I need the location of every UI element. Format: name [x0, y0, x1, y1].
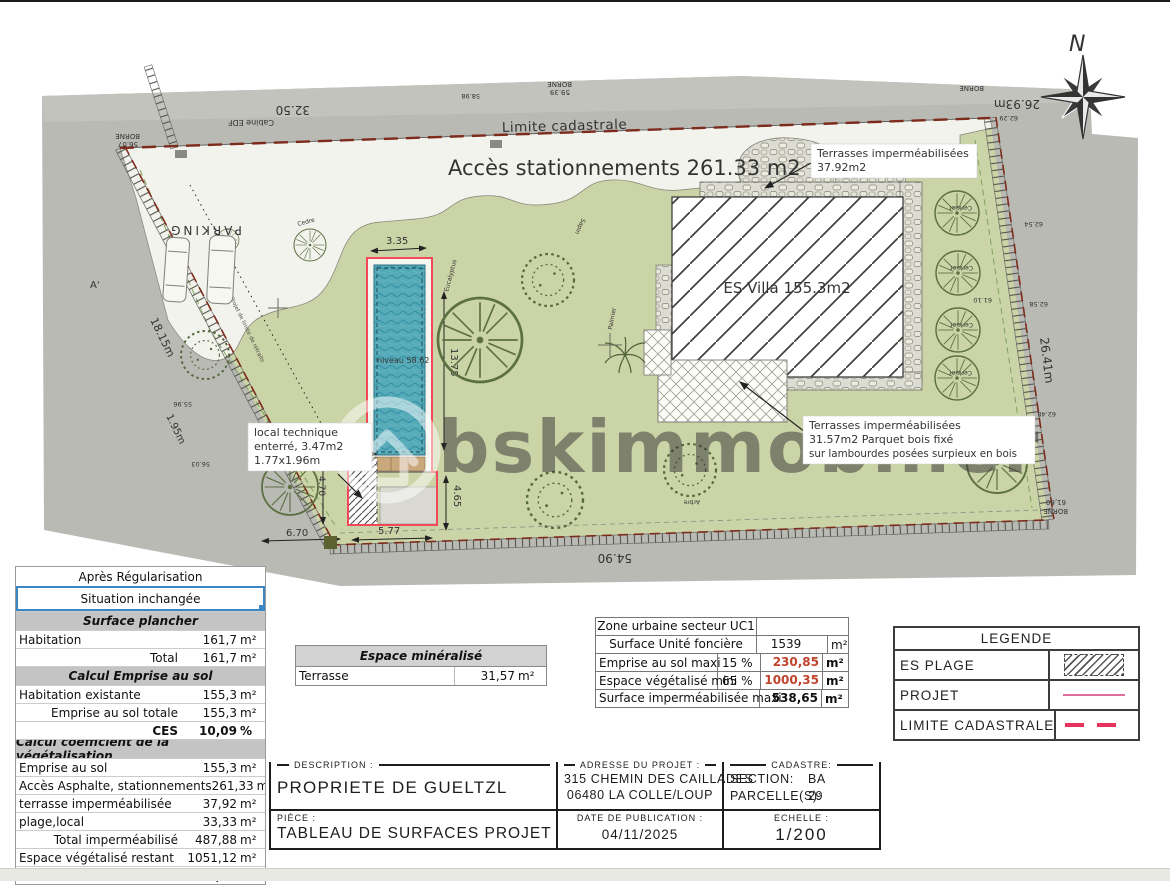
- annotation-line: 37.92m2: [817, 161, 866, 174]
- tree-label-cerisier-2: Cerisier: [950, 264, 973, 271]
- table-row: terrasse imperméabilisée37,92m²: [16, 794, 265, 812]
- dim-street-top: 32.50: [276, 103, 310, 117]
- section-title: Calcul Emprise au sol: [68, 669, 212, 683]
- dim-pool-width: 3.35: [386, 236, 408, 247]
- row-unit: m²: [237, 851, 265, 865]
- borne-bottomright: BORNE: [1043, 507, 1068, 515]
- elevation: 56.03: [191, 460, 210, 468]
- cadastre-label: CADASTRE:: [771, 760, 832, 770]
- tree-label-cerisier-4: Cerisier: [949, 369, 972, 376]
- limite-cadastrale-label: Limite cadastrale: [502, 117, 628, 136]
- table-row: Total161,7m²: [16, 648, 265, 666]
- row-value: 37,92: [183, 797, 237, 811]
- borne-marker: [324, 536, 337, 549]
- row-label: Surface Unité foncière: [596, 636, 757, 653]
- row-unit: m²: [515, 669, 546, 683]
- rule: [564, 764, 575, 766]
- table-row: Espace végétalisé mini 65 % 1000,35 m²: [596, 671, 848, 689]
- parking-label: PARKING: [168, 223, 242, 237]
- parcelle-label: PARCELLE(S):: [730, 788, 808, 805]
- adresse-line-2: 06480 LA COLLE/LOUP: [564, 787, 716, 803]
- cabine-edf-label: Cabine EDF: [227, 118, 274, 127]
- elevation: 62.29: [999, 114, 1018, 122]
- table-header-situation: Situation inchangée: [16, 586, 265, 611]
- row-label: Emprise au sol totale: [16, 706, 183, 720]
- dim-bottom-1: 6.70: [286, 528, 308, 539]
- mineral-table: Espace minéralisé Terrasse 31,57 m²: [295, 645, 547, 686]
- row-label: Total imperméabilisé: [16, 833, 183, 847]
- row-value: 155,3: [183, 761, 237, 775]
- zone-title: Zone urbaine secteur UC1: [596, 618, 757, 635]
- row-value: 538,65: [760, 690, 822, 707]
- echelle-value: 1/200: [730, 825, 873, 845]
- row-unit: m²: [237, 633, 265, 647]
- annotation-line: Terrasses imperméabilisées: [816, 147, 969, 160]
- piece-value: TABLEAU DE SURFACES PROJET: [277, 825, 550, 843]
- section-value: BA: [808, 771, 873, 788]
- row-unit: m²: [237, 815, 265, 829]
- row-label: Habitation existante: [16, 688, 183, 702]
- row-label: Total: [16, 651, 183, 665]
- legend: LEGENDE ES PLAGE PROJET LIMITE CADASTRAL…: [893, 626, 1140, 741]
- rule: [837, 764, 873, 766]
- row-value: 155,3: [183, 688, 237, 702]
- row-percent: 15 %: [718, 654, 761, 671]
- annotation-line: 1.77x1.96m: [254, 454, 320, 467]
- page: { "plan": { "north": "N", "watermark": "…: [0, 0, 1170, 880]
- borne-topright: BORNE: [959, 84, 984, 92]
- row-unit: m²: [237, 761, 265, 775]
- table-row: Terrasse 31,57 m²: [296, 667, 546, 685]
- borne-top: BORNE: [547, 80, 572, 88]
- row-unit: m²: [237, 833, 265, 847]
- description-label: DESCRIPTION :: [294, 760, 374, 770]
- adresse-value: 315 CHEMIN DES CAILLADES 06480 LA COLLE/…: [564, 771, 716, 804]
- row-unit: m²: [828, 638, 848, 652]
- row-label: Espace végétalisé mini: [596, 672, 718, 689]
- title-block-cadastre: CADASTRE: SECTION: BA PARCELLE(S): 29: [722, 762, 879, 809]
- title-block-piece: PIÈCE : TABLEAU DE SURFACES PROJET: [271, 809, 556, 848]
- mineral-table-header: Espace minéralisé: [296, 646, 546, 667]
- legend-title: LEGENDE: [895, 628, 1138, 649]
- row-value: 230,85: [761, 654, 823, 671]
- dim-bottom-2: 5.77: [378, 526, 400, 537]
- legend-swatch-cell: [1048, 681, 1138, 709]
- table-row: Emprise au sol totale155,3m²: [16, 703, 265, 721]
- title-block-adresse: ADRESSE DU PROJET : 315 CHEMIN DES CAILL…: [556, 762, 722, 809]
- north-label: N: [1069, 32, 1085, 57]
- borne-left-value: 56.07: [118, 140, 138, 148]
- adresse-line-1: 315 CHEMIN DES CAILLADES: [564, 771, 716, 787]
- label-a-prime: A': [90, 280, 100, 291]
- rule: [730, 764, 766, 766]
- table-row: Total imperméabilisé487,88m²: [16, 830, 265, 848]
- acces-label: Accès stationnements 261.33 m2: [448, 156, 801, 180]
- row-value: 1000,35: [761, 672, 823, 689]
- rule: [277, 764, 289, 766]
- window-top-edge: [0, 0, 1170, 2]
- title-block-echelle: ECHELLE : 1/200: [722, 809, 879, 848]
- row-value: 1051,12: [183, 851, 237, 865]
- dim-top-right: 26.93m: [994, 97, 1040, 111]
- row-label: Emprise au sol: [16, 761, 183, 775]
- row-value: 155,3: [183, 706, 237, 720]
- date-label: DATE DE PUBLICATION :: [564, 813, 716, 823]
- elevation: 61.10: [973, 296, 992, 304]
- adresse-label: ADRESSE DU PROJET :: [580, 760, 700, 770]
- table-row: Surface Unité foncière 1539 m²: [596, 635, 848, 653]
- window-bottom-edge: [0, 868, 1170, 881]
- section-surface-plancher: Surface plancher: [16, 611, 265, 630]
- legend-label: PROJET: [895, 688, 1048, 703]
- title-block: DESCRIPTION : PROPRIETE DE GUELTZL ADRES…: [269, 762, 881, 850]
- row-unit: m²: [237, 688, 265, 702]
- title-block-date: DATE DE PUBLICATION : 04/11/2025: [556, 809, 722, 848]
- borne-bottomright-value: 61,60: [1046, 498, 1066, 506]
- table-row: Surface imperméabilisée maxi 538,65 m²: [596, 689, 848, 707]
- table-row: Zone urbaine secteur UC1: [596, 618, 848, 635]
- date-value: 04/11/2025: [564, 827, 716, 842]
- table-row: Emprise au sol155,3m²: [16, 758, 265, 776]
- row-value: 261,33: [212, 779, 254, 793]
- cadastre-header: CADASTRE:: [730, 761, 873, 769]
- row-value: 161,7: [183, 633, 237, 647]
- row-unit: m²: [823, 656, 848, 670]
- legend-swatch-cell: [1048, 651, 1138, 679]
- description-header: DESCRIPTION :: [277, 761, 550, 769]
- row-unit: m²: [823, 674, 848, 688]
- row-value: 31,57: [454, 667, 515, 685]
- section-vegetalisation: Calcul coefficient de la végétalisation: [16, 739, 265, 758]
- surfaces-table: Après Régularisation Situation inchangée…: [15, 566, 266, 885]
- table-row: Emprise au sol maxi 15 % 230,85 m²: [596, 653, 848, 671]
- tree-label-cerisier-3: Cerisier: [950, 321, 973, 328]
- row-percent: 65 %: [718, 672, 761, 689]
- description-value: PROPRIETE DE GUELTZL: [277, 778, 550, 798]
- row-value: 33,33: [183, 815, 237, 829]
- tree-label-arbre: Arbre: [683, 498, 700, 506]
- limite-dash-swatch: [1065, 723, 1129, 727]
- section-emprise: Calcul Emprise au sol: [16, 666, 265, 685]
- legend-row-projet: PROJET: [895, 679, 1138, 709]
- header-text: Situation inchangée: [81, 592, 201, 606]
- title-block-description: DESCRIPTION : PROPRIETE DE GUELTZL: [271, 762, 556, 809]
- section-title: Surface plancher: [83, 614, 198, 628]
- row-label: terrasse imperméabilisée: [16, 797, 183, 811]
- legend-label: LIMITE CADASTRALE: [895, 718, 1054, 733]
- row-label: Terrasse: [296, 669, 454, 683]
- elevation: 62.54: [1024, 220, 1043, 228]
- villa: ES Villa 155.3m2: [672, 197, 903, 377]
- table-row: Accès Asphalte, stationnements261,33m²: [16, 776, 265, 794]
- table-header-regularisation: Après Régularisation: [16, 567, 265, 586]
- projet-line-swatch: [1063, 694, 1125, 697]
- row-label: Habitation: [16, 633, 183, 647]
- tree-label-cerisier-1: Cerisier: [949, 204, 972, 211]
- dim-street-bottom: 54.90: [598, 551, 632, 565]
- table-row: Habitation161,7m²: [16, 630, 265, 648]
- zone-table: Zone urbaine secteur UC1 Surface Unité f…: [595, 617, 849, 708]
- annotation-line: local technique: [254, 426, 338, 439]
- row-value: 161,7: [183, 651, 237, 665]
- row-label: CES: [16, 724, 183, 738]
- table-row: plage,local33,33m²: [16, 812, 265, 830]
- pool-level-label: niveau 58.62: [377, 356, 429, 365]
- row-unit: m²: [237, 797, 265, 811]
- elevation: 58.98: [461, 92, 480, 100]
- table-row: CES10,09%: [16, 721, 265, 739]
- legend-title-text: LEGENDE: [981, 631, 1053, 646]
- row-label: plage,local: [16, 815, 183, 829]
- rule: [705, 764, 716, 766]
- header-text: Après Régularisation: [79, 570, 203, 584]
- selection-handle: [259, 605, 264, 610]
- elevation: 55.96: [173, 400, 192, 408]
- borne-left: BORNE: [115, 132, 140, 140]
- elevation: 62.58: [1029, 300, 1048, 308]
- section-label: SECTION:: [730, 771, 808, 788]
- row-value: 10,09: [183, 724, 237, 738]
- annotation-line: 31.57m2 Parquet bois fixé: [809, 433, 954, 446]
- echelle-label: ECHELLE :: [730, 813, 873, 823]
- row-value: 487,88: [183, 833, 237, 847]
- row-unit: m²: [237, 706, 265, 720]
- legend-row-limite: LIMITE CADASTRALE: [895, 709, 1138, 739]
- annotation-line: Terrasses imperméabilisées: [808, 419, 961, 432]
- villa-label: ES Villa 155.3m2: [723, 279, 850, 297]
- row-value: 1539: [757, 636, 828, 653]
- hatch-swatch: [1064, 654, 1124, 676]
- parcelle-value: 29: [808, 788, 873, 805]
- row-unit: m²: [822, 692, 848, 706]
- borne-top-value: 59.39: [550, 88, 570, 96]
- rule: [379, 764, 550, 766]
- legend-row-es-plage: ES PLAGE: [895, 649, 1138, 679]
- row-label: Espace végétalisé restant: [16, 851, 183, 865]
- annotation-line: sur lambourdes posées surpieux en bois: [809, 448, 1017, 460]
- section-title: Calcul coefficient de la végétalisation: [16, 739, 265, 758]
- table-row: Espace végétalisé restant1051,12m²: [16, 848, 265, 866]
- cadastre-value: SECTION: BA PARCELLE(S): 29: [730, 771, 873, 805]
- row-unit: %: [237, 724, 265, 738]
- row-label: Accès Asphalte, stationnements: [16, 779, 212, 793]
- adresse-header: ADRESSE DU PROJET :: [564, 761, 716, 769]
- legend-swatch-cell: [1054, 711, 1138, 739]
- row-label: Surface imperméabilisée maxi: [596, 690, 760, 707]
- site-plan: ES Villa 155.3m2 niveau 58.62 3.35: [40, 30, 1140, 595]
- annotation-line: enterré, 3.47m2: [254, 440, 343, 453]
- row-label: Emprise au sol maxi: [596, 654, 718, 671]
- row-unit: m²: [237, 651, 265, 665]
- piece-label: PIÈCE :: [277, 813, 550, 823]
- row-unit: m²: [254, 779, 265, 793]
- table-row: Habitation existante155,3m²: [16, 685, 265, 703]
- legend-label: ES PLAGE: [895, 658, 1048, 673]
- header-text: Espace minéralisé: [360, 649, 482, 663]
